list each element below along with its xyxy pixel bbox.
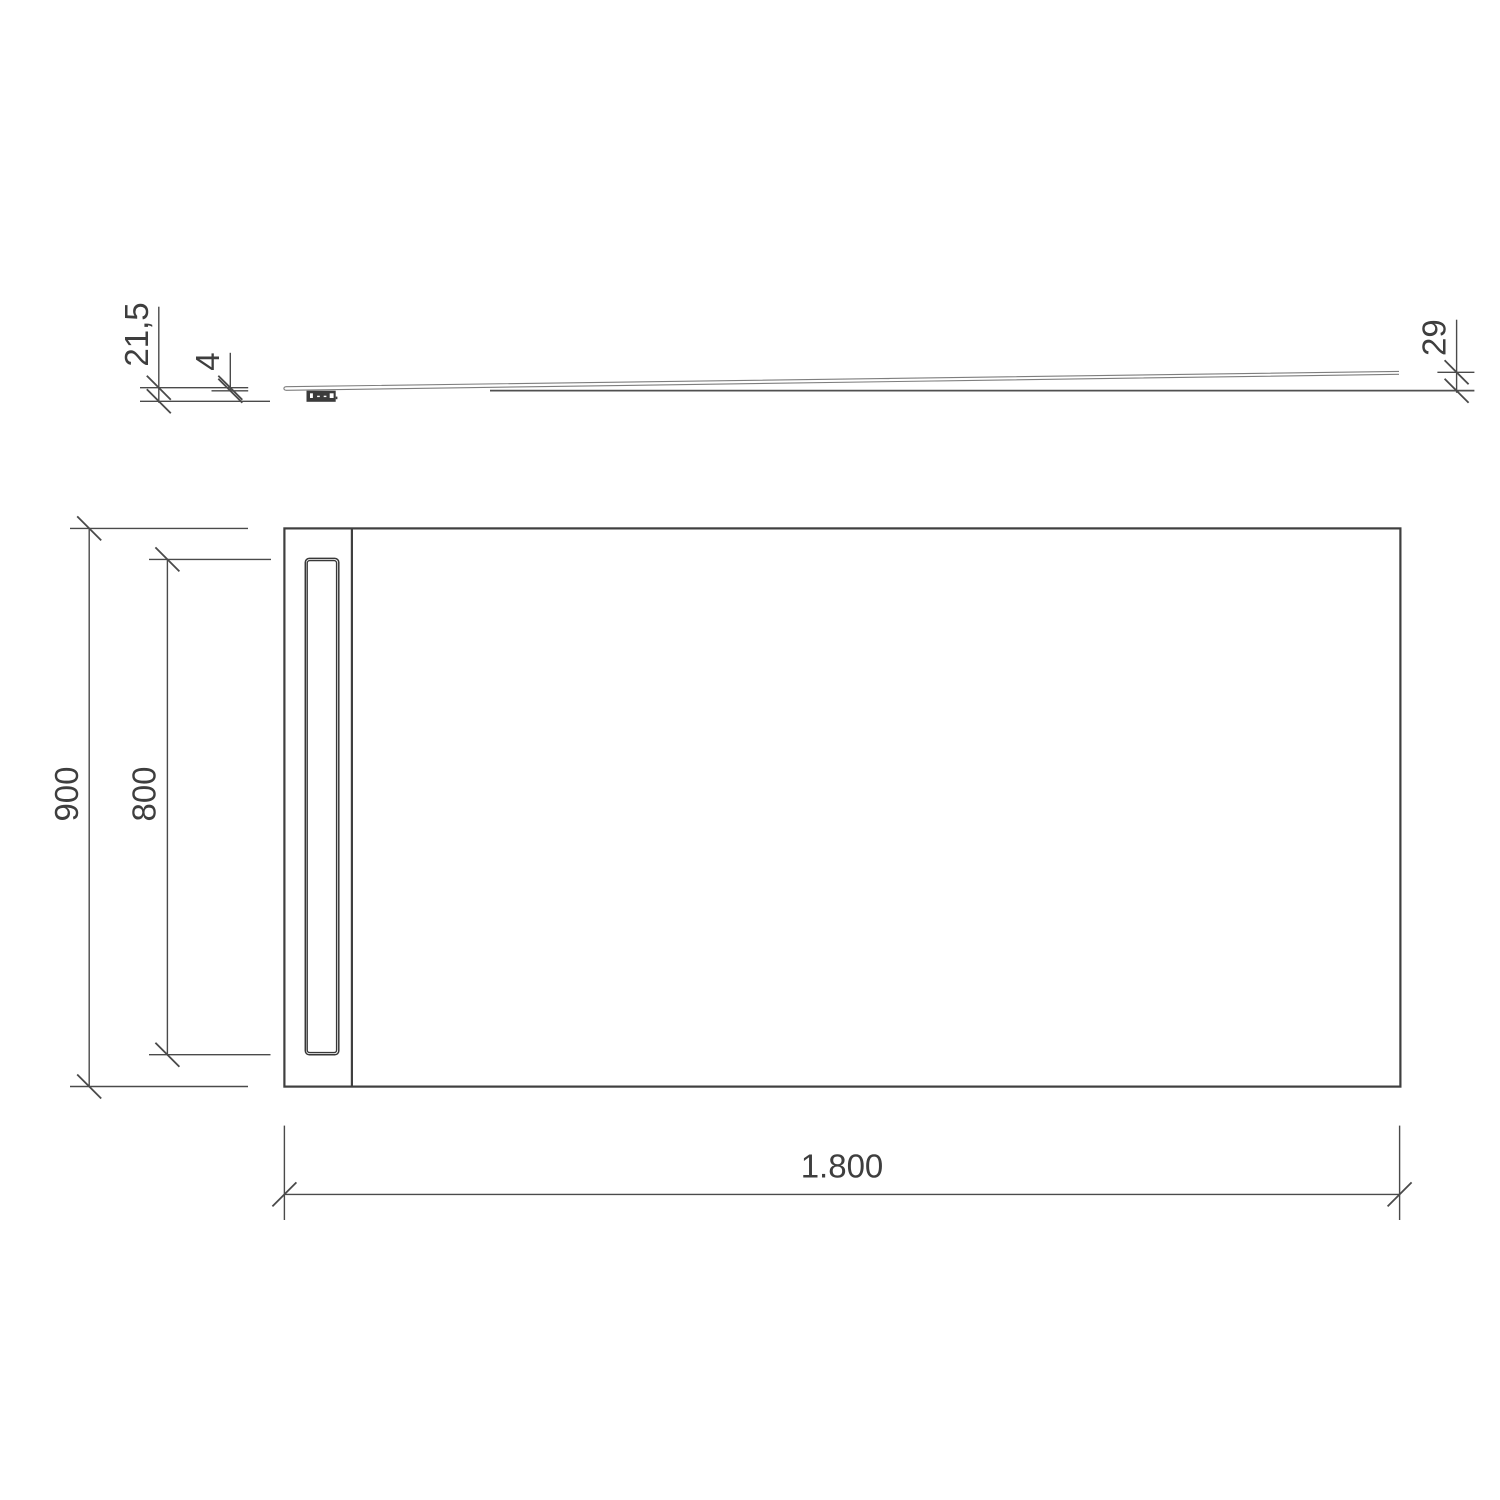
- svg-text:800: 800: [126, 766, 163, 821]
- svg-text:1.800: 1.800: [801, 1148, 884, 1185]
- svg-text:4: 4: [189, 352, 226, 370]
- svg-text:21,5: 21,5: [118, 302, 155, 366]
- svg-text:900: 900: [48, 766, 85, 821]
- svg-text:29: 29: [1416, 319, 1453, 356]
